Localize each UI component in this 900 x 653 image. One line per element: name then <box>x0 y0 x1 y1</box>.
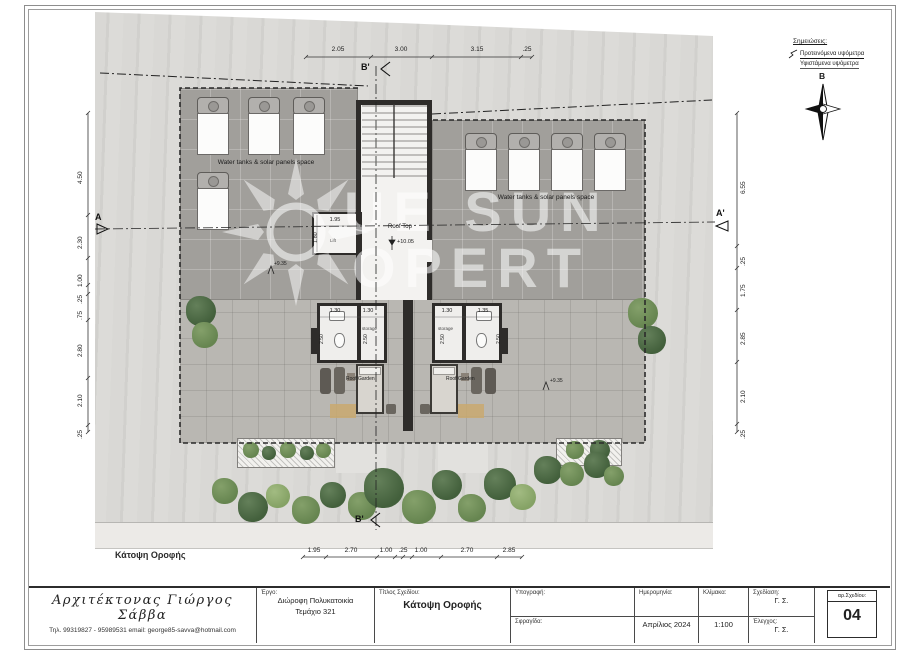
dim-label: 6.55 <box>741 181 748 194</box>
shrub <box>300 446 314 460</box>
drawing-title-cell: Τίτλος Σχεδίου: Κάτοψη Οροφής <box>375 588 511 643</box>
level-marker-label: +9.35 <box>274 262 287 267</box>
left-unit-divider-wall <box>357 306 361 360</box>
drawn-checked-cell: Σχεδίαση: Γ. Σ. Έλεγχος: Γ. Σ. <box>749 588 815 643</box>
section-marker-b-top: B' <box>361 62 370 72</box>
dim-label: 3.15 <box>471 47 484 54</box>
stamp-label: Σφραγίδα: <box>511 617 634 625</box>
unit-height-dim: 2.50 <box>364 334 369 344</box>
scale-value: 1:100 <box>699 617 748 629</box>
lift-width-dim: 1.95 <box>330 218 341 224</box>
tree <box>402 490 436 524</box>
dim-label: 1.00 <box>415 548 428 555</box>
core-wall-right-upper <box>427 100 432 240</box>
dim-label: 2.70 <box>461 548 474 555</box>
signature-cell: Υπογραφή: Σφραγίδα: <box>511 588 635 643</box>
architect-contact: Τηλ. 99319827 - 95989531 email: george85… <box>29 623 256 634</box>
checked-label: Έλεγχος: <box>749 617 814 625</box>
dim-label: .25 <box>78 295 85 304</box>
date-value: Απρίλιος 2024 <box>635 617 698 629</box>
drawing-number-label: αρ.Σχεδίου: <box>828 591 876 602</box>
stair-core <box>356 100 432 300</box>
dim-label: .25 <box>398 548 407 555</box>
tree <box>604 466 624 486</box>
storage-label: storage <box>362 327 377 332</box>
dim-label: 2.85 <box>741 332 748 345</box>
dim-label: 2.10 <box>741 390 748 403</box>
level-marker-label: +9.35 <box>550 379 563 384</box>
rug <box>330 404 356 418</box>
toilet-fixture <box>476 333 487 348</box>
shrub <box>316 443 331 458</box>
tree <box>192 322 218 348</box>
project-line1: Διώροφη Πολυκατοικία <box>257 596 374 607</box>
solar-panel <box>508 149 540 191</box>
shrub <box>566 441 584 459</box>
tree <box>628 298 658 328</box>
north-label: B <box>819 71 825 81</box>
roof-top-level: +10.05 <box>397 240 414 246</box>
tree <box>364 468 404 508</box>
solar-panel <box>197 113 229 155</box>
rug <box>458 404 484 418</box>
section-marker-a-prime: A' <box>716 208 725 218</box>
dim-label: 3.00 <box>395 47 408 54</box>
drawing-caption: Κάτοψη Οροφής <box>115 551 186 560</box>
section-marker-b-bottom: B' <box>355 514 364 524</box>
wall-stub-right <box>502 328 508 354</box>
unit-height-dim: 2.50 <box>497 334 502 344</box>
signature-label: Υπογραφή: <box>511 588 634 596</box>
solar-panel <box>248 113 280 155</box>
water-tanks-label-right: Water tanks & solar panels space <box>498 195 595 202</box>
dim-label: .75 <box>78 311 85 320</box>
shrub <box>243 442 259 458</box>
sun-lounger <box>320 368 331 394</box>
dim-label: .25 <box>522 47 531 54</box>
core-wall-top <box>356 100 432 105</box>
tree <box>212 478 238 504</box>
dim-label: 4.50 <box>78 171 85 184</box>
solar-panel <box>551 149 583 191</box>
dim-label: .25 <box>741 430 748 439</box>
scale-label: Κλίμακα: <box>699 588 748 596</box>
scale-cell: Κλίμακα: 1:100 <box>699 588 749 643</box>
section-marker-a: A <box>95 212 102 222</box>
tree <box>266 484 290 508</box>
tree <box>534 456 562 484</box>
dim-label: 1.95 <box>308 548 321 555</box>
unit-dim: 1.30 <box>442 309 453 315</box>
dim-label: 2.85 <box>503 548 516 555</box>
solar-panel <box>465 149 497 191</box>
solar-panel <box>293 113 325 155</box>
lift-height-dim: 1.80 <box>314 232 320 243</box>
unit-dim: 1.30 <box>330 309 341 315</box>
party-wall <box>403 300 413 431</box>
legend-title: Σημειώσεις: <box>793 38 827 45</box>
dim-label: .25 <box>78 430 85 439</box>
right-unit-divider-wall <box>462 306 466 360</box>
project-label: Έργο: <box>257 588 374 596</box>
tree <box>638 326 666 354</box>
architect-cell: Αρχιτέκτονας Γιώργος Σάββα Τηλ. 99319827… <box>29 588 257 643</box>
core-wall-right-lower <box>427 262 432 300</box>
legend-existing-levels: Υφιστάμενα υψόμετρα <box>800 61 859 69</box>
shrub <box>262 446 276 460</box>
lift-label: Lift <box>330 239 336 244</box>
toilet-fixture <box>334 333 345 348</box>
title-block: Αρχιτέκτονας Γιώργος Σάββα Τηλ. 99319827… <box>29 586 890 643</box>
solar-panel <box>594 149 626 191</box>
dim-label: 2.05 <box>332 47 345 54</box>
tree <box>458 494 486 522</box>
unit-height-dim: 2.50 <box>441 334 446 344</box>
core-wall-left <box>356 100 361 300</box>
roof-top-label: Roof Top <box>388 224 412 230</box>
project-cell: Έργο: Διώροφη Πολυκατοικία Τεμάχιο 321 <box>257 588 375 643</box>
date-cell: Ημερομηνία: Απρίλιος 2024 <box>635 588 699 643</box>
architect-name: Αρχιτέκτονας Γιώργος Σάββα <box>29 588 256 623</box>
tree <box>320 482 346 508</box>
chair <box>386 404 396 414</box>
road-strip <box>95 522 713 549</box>
sun-lounger <box>485 368 496 394</box>
drawing-number-box: αρ.Σχεδίου: 04 <box>827 590 877 638</box>
dim-label: 2.70 <box>345 548 358 555</box>
pillow <box>359 367 381 375</box>
drawn-value: Γ. Σ. <box>749 596 814 605</box>
left-service-unit <box>317 303 387 363</box>
dim-label: 1.00 <box>380 548 393 555</box>
drawing-number-value: 04 <box>828 602 876 625</box>
legend-proposed-levels: Προτεινόμενα υψόμετρα <box>800 51 864 59</box>
shrub <box>280 442 296 458</box>
tree <box>432 470 462 500</box>
dim-label: 2.10 <box>78 394 85 407</box>
unit-height-dim: 2.50 <box>320 334 325 344</box>
drawn-label: Σχεδίαση: <box>749 588 814 596</box>
pillow <box>433 367 455 375</box>
dim-label: 2.30 <box>78 236 85 249</box>
roof-garden-label: Roof Garden <box>446 377 475 382</box>
project-line2: Τεμάχιο 321 <box>257 607 374 618</box>
sun-lounger <box>334 367 345 394</box>
drawing-title-label: Τίτλος Σχεδίου: <box>375 588 510 596</box>
water-tanks-label-left: Water tanks & solar panels space <box>218 160 315 167</box>
tree <box>560 462 584 486</box>
chair <box>420 404 430 414</box>
solar-panel <box>197 188 229 230</box>
dim-label: 1.00 <box>78 274 85 287</box>
tree <box>510 484 536 510</box>
walkway <box>438 443 488 473</box>
dim-label: 1.75 <box>741 284 748 297</box>
date-label: Ημερομηνία: <box>635 588 698 596</box>
wall-stub-left <box>311 328 317 354</box>
roof-garden-label: Roof Garden <box>346 377 375 382</box>
drawing-title-value: Κάτοψη Οροφής <box>375 596 510 611</box>
unit-dim: 1.30 <box>363 309 374 315</box>
dim-label: 2.80 <box>78 344 85 357</box>
tree <box>292 496 320 524</box>
checked-value: Γ. Σ. <box>749 625 814 634</box>
unit-dim: 1.35 <box>478 309 489 315</box>
storage-label: storage <box>438 327 453 332</box>
dim-label: .25 <box>741 257 748 266</box>
tree <box>238 492 268 522</box>
